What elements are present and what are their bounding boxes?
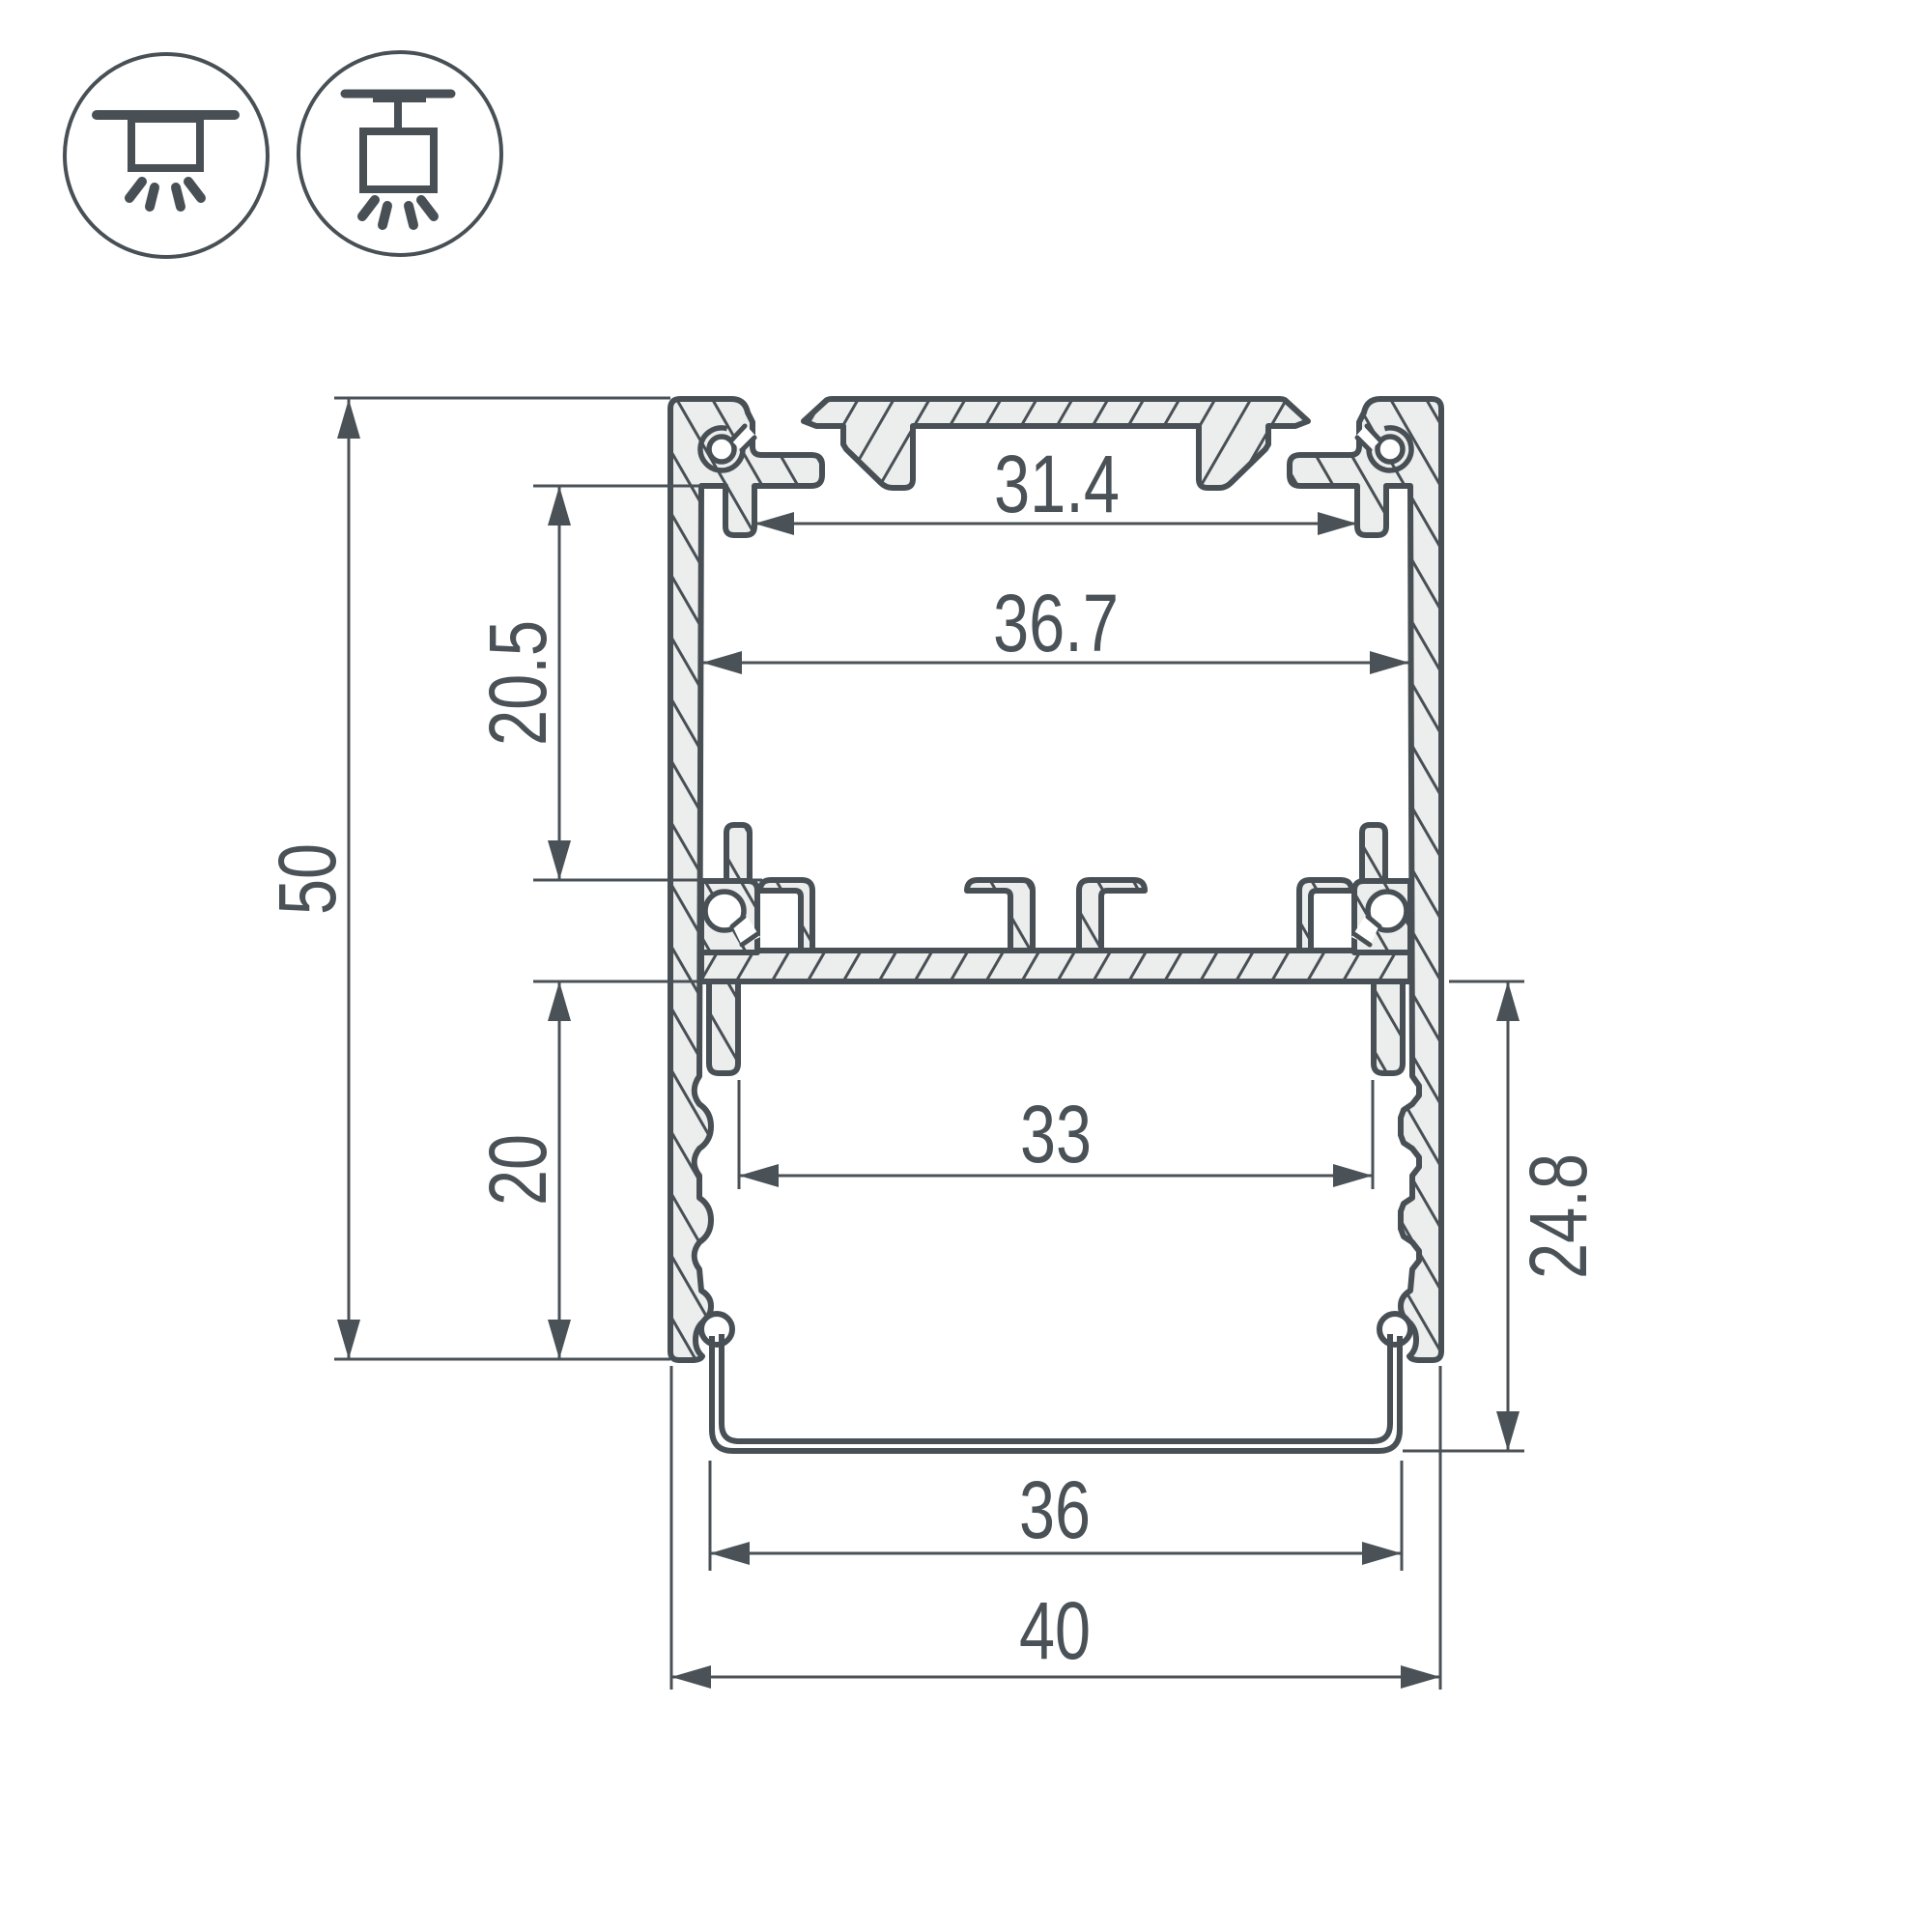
svg-text:40: 40 bbox=[1019, 1585, 1091, 1676]
svg-text:36: 36 bbox=[1019, 1464, 1091, 1555]
svg-text:20.5: 20.5 bbox=[472, 620, 563, 746]
svg-text:33: 33 bbox=[1020, 1089, 1092, 1179]
svg-text:50: 50 bbox=[262, 843, 353, 915]
svg-text:31.4: 31.4 bbox=[994, 439, 1120, 529]
svg-text:36.7: 36.7 bbox=[993, 578, 1119, 668]
svg-text:24.8: 24.8 bbox=[1513, 1153, 1604, 1279]
svg-text:20: 20 bbox=[472, 1134, 563, 1206]
